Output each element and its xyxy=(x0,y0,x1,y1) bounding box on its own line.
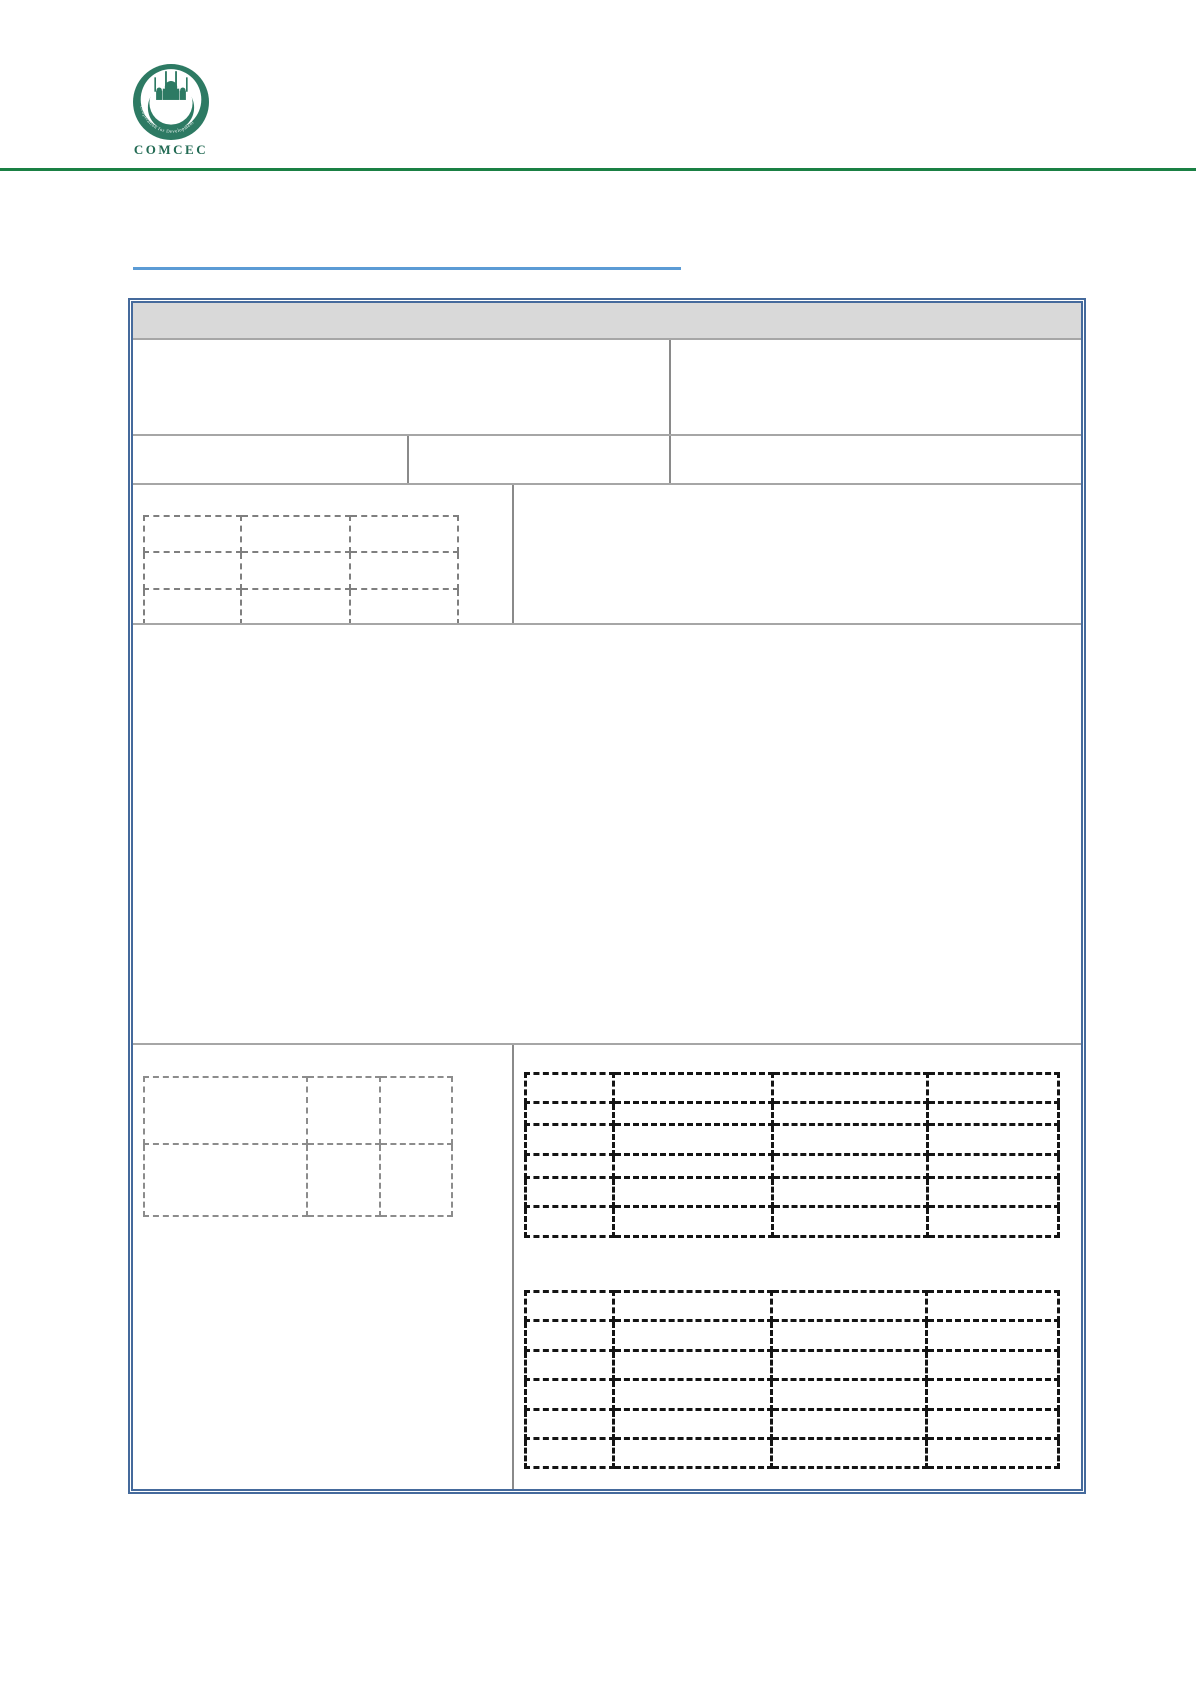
dashed-cell[interactable] xyxy=(772,1439,927,1468)
form-cell-r1c1[interactable] xyxy=(133,340,669,434)
form-cell-r2c2[interactable] xyxy=(407,436,669,483)
form-cell-r3-right[interactable] xyxy=(512,485,1081,623)
dashed-cell[interactable] xyxy=(144,552,241,589)
dashed-cell[interactable] xyxy=(350,552,458,589)
logo-center-text: COMCEC xyxy=(163,110,179,114)
dashed-cell[interactable] xyxy=(614,1103,773,1125)
dashed-cell[interactable] xyxy=(526,1103,614,1125)
form-cell-r2c3[interactable] xyxy=(669,436,1081,483)
form-row-2 xyxy=(133,434,1081,483)
dashed-cell[interactable] xyxy=(526,1410,614,1439)
form-cell-r3-left xyxy=(133,485,512,623)
dashed-cell[interactable] xyxy=(614,1074,773,1103)
dashed-cell[interactable] xyxy=(614,1439,772,1468)
upper-left-dashed-table xyxy=(143,515,459,625)
dashed-cell[interactable] xyxy=(241,516,350,552)
form-cell-r2c1[interactable] xyxy=(133,436,407,483)
dashed-cell[interactable] xyxy=(927,1410,1059,1439)
dashed-cell[interactable] xyxy=(773,1178,928,1207)
dashed-cell[interactable] xyxy=(526,1292,614,1321)
dashed-cell[interactable] xyxy=(928,1103,1059,1125)
dashed-cell[interactable] xyxy=(307,1144,380,1216)
dashed-cell[interactable] xyxy=(526,1439,614,1468)
comcec-logo: COMCEC Cooperation for Development COMCE… xyxy=(126,64,216,158)
dashed-cell[interactable] xyxy=(526,1207,614,1237)
form-cell-r1c2[interactable] xyxy=(669,340,1081,434)
dashed-cell[interactable] xyxy=(380,1077,452,1144)
dashed-cell[interactable] xyxy=(614,1410,772,1439)
form-table xyxy=(128,298,1086,1494)
dashed-cell[interactable] xyxy=(144,1144,307,1216)
lower-left-dashed-table xyxy=(143,1076,453,1217)
dashed-cell[interactable] xyxy=(773,1155,928,1178)
dashed-cell[interactable] xyxy=(927,1380,1059,1410)
dashed-cell[interactable] xyxy=(380,1144,452,1216)
dashed-cell[interactable] xyxy=(241,589,350,624)
dashed-cell[interactable] xyxy=(526,1351,614,1380)
document-page: COMCEC Cooperation for Development COMCE… xyxy=(0,0,1196,1692)
form-row-4 xyxy=(133,623,1081,1043)
dashed-cell[interactable] xyxy=(526,1380,614,1410)
dashed-cell[interactable] xyxy=(772,1292,927,1321)
dashed-cell[interactable] xyxy=(927,1351,1059,1380)
dashed-cell[interactable] xyxy=(773,1125,928,1155)
logo-caption: COMCEC xyxy=(126,142,216,158)
dashed-cell[interactable] xyxy=(350,516,458,552)
dashed-cell[interactable] xyxy=(772,1351,927,1380)
dashed-cell[interactable] xyxy=(614,1351,772,1380)
dashed-cell[interactable] xyxy=(927,1439,1059,1468)
dashed-cell[interactable] xyxy=(526,1321,614,1351)
title-link-underline[interactable] xyxy=(133,267,681,270)
comcec-emblem-icon: COMCEC Cooperation for Development xyxy=(133,64,209,140)
form-row-5 xyxy=(133,1043,1081,1489)
dashed-cell[interactable] xyxy=(773,1074,928,1103)
dashed-cell[interactable] xyxy=(927,1292,1059,1321)
header-rule xyxy=(0,168,1196,171)
form-cell-bottom-right xyxy=(512,1045,1081,1489)
form-row-1 xyxy=(133,338,1081,434)
dashed-cell[interactable] xyxy=(928,1207,1059,1237)
dashed-cell[interactable] xyxy=(772,1321,927,1351)
dashed-cell[interactable] xyxy=(144,1077,307,1144)
dashed-cell[interactable] xyxy=(772,1380,927,1410)
dashed-cell[interactable] xyxy=(614,1292,772,1321)
dashed-cell[interactable] xyxy=(350,589,458,624)
dashed-cell[interactable] xyxy=(773,1207,928,1237)
dashed-cell[interactable] xyxy=(241,552,350,589)
dashed-cell[interactable] xyxy=(772,1410,927,1439)
dashed-cell[interactable] xyxy=(307,1077,380,1144)
dashed-cell[interactable] xyxy=(144,516,241,552)
form-row-3 xyxy=(133,483,1081,623)
form-header-bar[interactable] xyxy=(133,303,1081,338)
dashed-cell[interactable] xyxy=(614,1207,773,1237)
dashed-cell[interactable] xyxy=(928,1155,1059,1178)
dashed-cell[interactable] xyxy=(614,1321,772,1351)
right-bottom-dashed-table xyxy=(524,1290,1060,1469)
dashed-cell[interactable] xyxy=(614,1178,773,1207)
dashed-cell[interactable] xyxy=(927,1321,1059,1351)
dashed-cell[interactable] xyxy=(526,1155,614,1178)
dashed-cell[interactable] xyxy=(928,1074,1059,1103)
form-big-cell[interactable] xyxy=(133,625,1081,1043)
form-cell-bottom-left xyxy=(133,1045,512,1489)
dashed-cell[interactable] xyxy=(526,1074,614,1103)
dashed-cell[interactable] xyxy=(526,1125,614,1155)
dashed-cell[interactable] xyxy=(526,1178,614,1207)
right-top-dashed-table xyxy=(524,1072,1060,1238)
dashed-cell[interactable] xyxy=(928,1125,1059,1155)
dashed-cell[interactable] xyxy=(614,1125,773,1155)
dashed-cell[interactable] xyxy=(773,1103,928,1125)
dashed-cell[interactable] xyxy=(144,589,241,624)
dashed-cell[interactable] xyxy=(928,1178,1059,1207)
dashed-cell[interactable] xyxy=(614,1380,772,1410)
dashed-cell[interactable] xyxy=(614,1155,773,1178)
